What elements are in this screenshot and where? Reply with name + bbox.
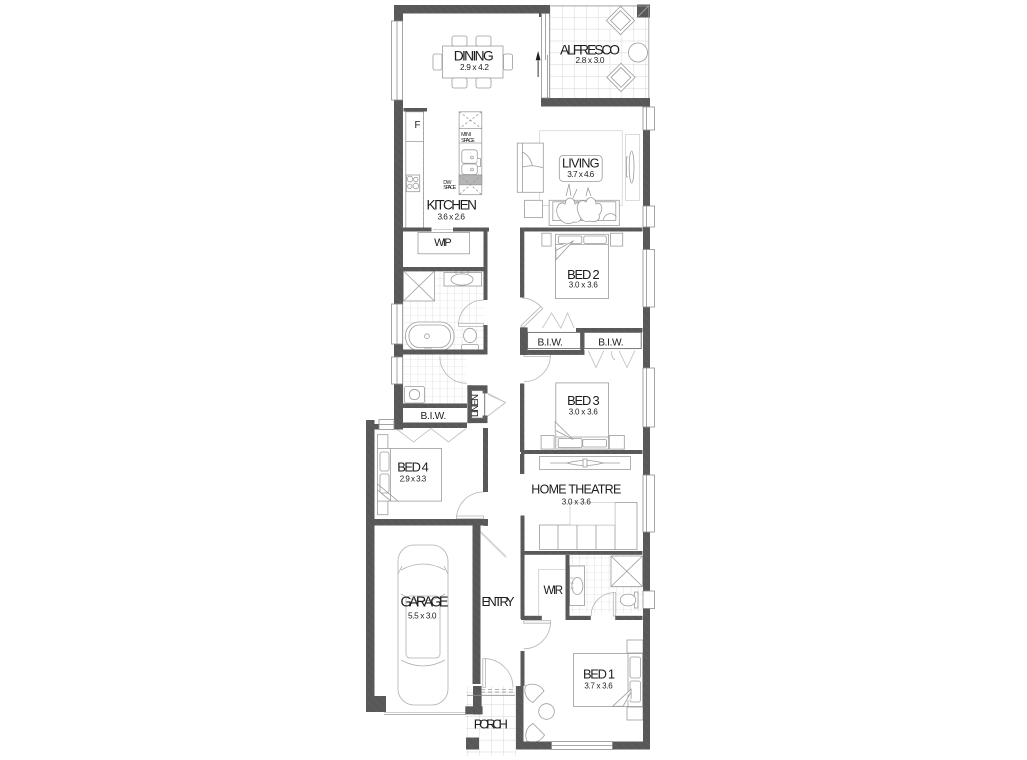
svg-text:3.0 x 3.6: 3.0 x 3.6 [569, 408, 599, 417]
svg-text:B.I.W.: B.I.W. [598, 337, 623, 348]
svg-text:BED 4: BED 4 [397, 460, 429, 475]
svg-text:3.6 x 2.6: 3.6 x 2.6 [437, 211, 465, 221]
svg-text:B.I.W.: B.I.W. [421, 411, 447, 422]
svg-text:2.9 x 3.3: 2.9 x 3.3 [400, 475, 427, 484]
svg-text:2.8 x 3.0: 2.8 x 3.0 [576, 55, 605, 65]
svg-text:MINI: MINI [461, 132, 471, 138]
svg-text:WIR: WIR [544, 585, 564, 597]
svg-text:3.7 x 4.6: 3.7 x 4.6 [567, 169, 594, 179]
svg-text:WIP: WIP [434, 237, 452, 249]
svg-text:GARAGE: GARAGE [401, 595, 449, 611]
svg-text:F: F [415, 120, 421, 131]
svg-text:KITCHEN: KITCHEN [426, 198, 477, 213]
svg-text:SPACE: SPACE [443, 185, 456, 191]
svg-text:2.9 x 4.2: 2.9 x 4.2 [460, 62, 489, 72]
svg-text:HOME THEATRE: HOME THEATRE [531, 482, 621, 496]
svg-text:3.0 x 3.6: 3.0 x 3.6 [562, 497, 592, 506]
svg-text:LINEN: LINEN [470, 394, 481, 417]
svg-text:B.I.W.: B.I.W. [538, 337, 563, 348]
svg-text:SPACE: SPACE [461, 138, 475, 144]
svg-text:ENTRY: ENTRY [482, 594, 515, 609]
svg-text:PORCH: PORCH [474, 716, 508, 731]
svg-text:5.5 x 3.0: 5.5 x 3.0 [408, 611, 437, 621]
svg-text:3.0 x 3.6: 3.0 x 3.6 [569, 281, 599, 290]
svg-text:BED 3: BED 3 [567, 393, 600, 408]
svg-text:3.7 x 3.6: 3.7 x 3.6 [584, 682, 613, 691]
svg-text:BED 1: BED 1 [583, 666, 615, 681]
